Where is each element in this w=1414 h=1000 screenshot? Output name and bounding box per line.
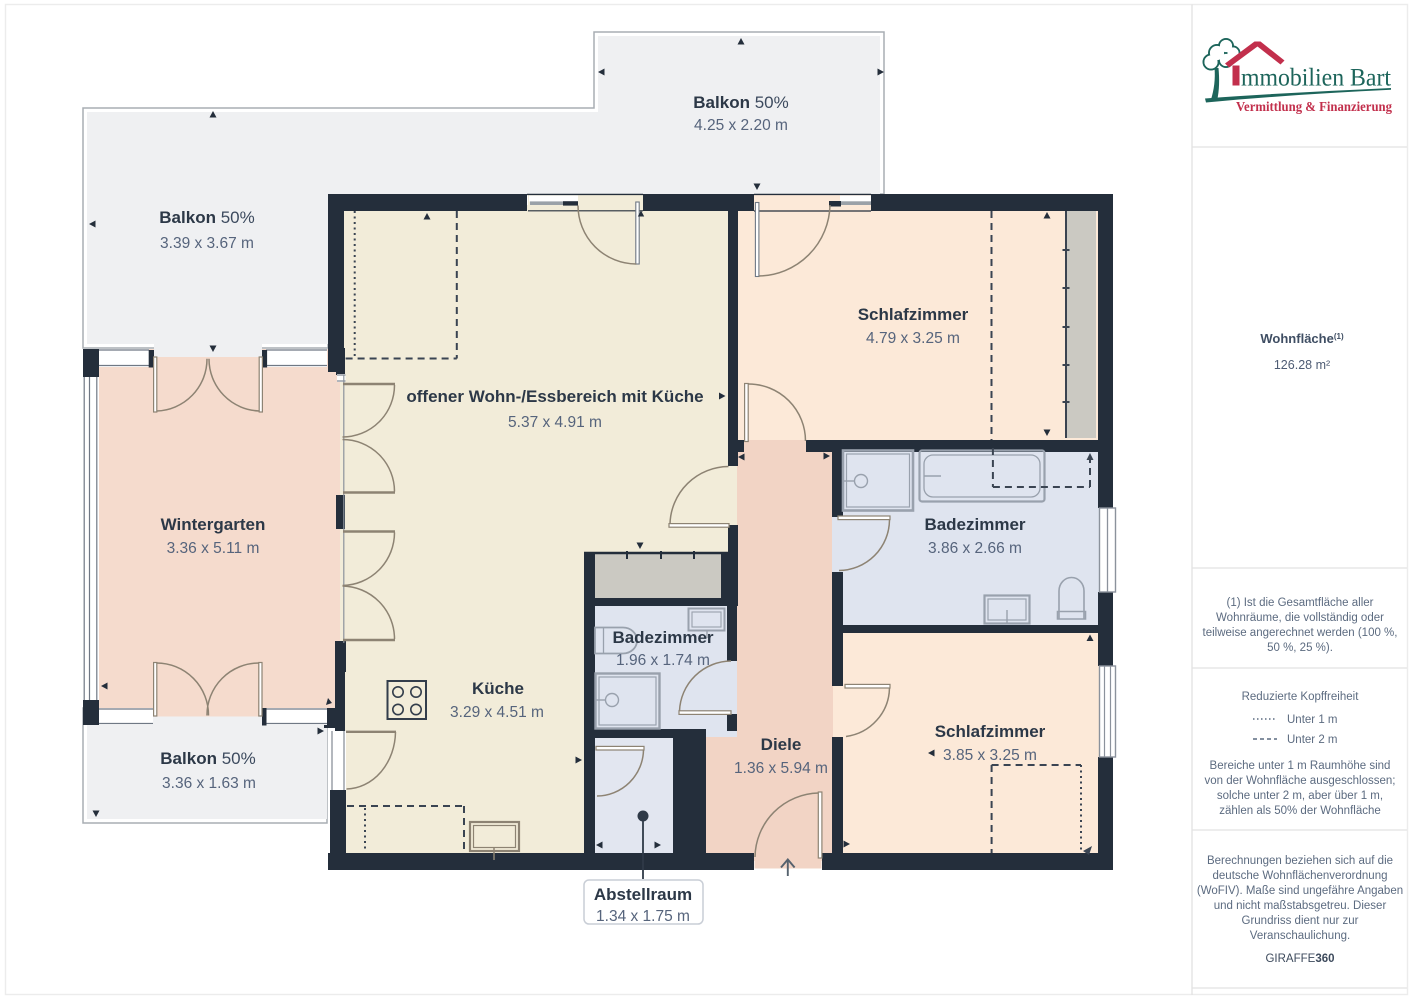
svg-text:zählen als 50% der Wohnfläche: zählen als 50% der Wohnfläche (1219, 805, 1381, 817)
svg-text:4.25 x 2.20 m: 4.25 x 2.20 m (694, 117, 788, 134)
svg-text:GIRAFFE360: GIRAFFE360 (1265, 953, 1334, 965)
svg-text:Veranschaulichung.: Veranschaulichung. (1250, 930, 1350, 942)
svg-text:Wintergarten: Wintergarten (161, 515, 266, 534)
svg-text:3.36 x 1.63 m: 3.36 x 1.63 m (162, 775, 256, 792)
svg-text:3.39 x 3.67 m: 3.39 x 3.67 m (160, 235, 254, 252)
svg-text:3.85 x 3.25 m: 3.85 x 3.25 m (943, 747, 1037, 764)
svg-text:3.29 x 4.51 m: 3.29 x 4.51 m (450, 704, 544, 721)
svg-text:5.37 x 4.91 m: 5.37 x 4.91 m (508, 414, 602, 431)
svg-text:Schlafzimmer: Schlafzimmer (858, 305, 969, 324)
svg-text:Wohnfläche(1): Wohnfläche(1) (1260, 331, 1344, 346)
svg-text:126.28 m²: 126.28 m² (1274, 358, 1330, 372)
svg-text:Vermittlung & Finanzierung: Vermittlung & Finanzierung (1236, 99, 1392, 114)
svg-text:Bereiche unter 1 m Raumhöhe si: Bereiche unter 1 m Raumhöhe sind (1210, 760, 1391, 772)
svg-text:1.34 x 1.75 m: 1.34 x 1.75 m (596, 908, 690, 925)
svg-text:50 %, 25 %).: 50 %, 25 %). (1267, 642, 1333, 654)
svg-text:von der Wohnfläche ausgeschlos: von der Wohnfläche ausgeschlossen; (1205, 775, 1396, 787)
svg-text:Reduzierte Kopffreiheit: Reduzierte Kopffreiheit (1242, 691, 1360, 703)
svg-text:Balkon 50%: Balkon 50% (160, 749, 255, 768)
svg-text:solche unter 2 m, aber über 1: solche unter 2 m, aber über 1 m, (1217, 790, 1383, 802)
svg-text:deutsche Wohnflächenverordnung: deutsche Wohnflächenverordnung (1213, 870, 1388, 882)
svg-text:4.79 x 3.25 m: 4.79 x 3.25 m (866, 330, 960, 347)
svg-text:Küche: Küche (472, 679, 524, 698)
svg-text:Schlafzimmer: Schlafzimmer (935, 722, 1046, 741)
svg-text:3.86 x 2.66 m: 3.86 x 2.66 m (928, 540, 1022, 557)
svg-text:Diele: Diele (761, 735, 802, 754)
svg-text:Abstellraum: Abstellraum (594, 885, 692, 904)
svg-text:Unter 1 m: Unter 1 m (1287, 714, 1338, 726)
svg-text:Unter 2 m: Unter 2 m (1287, 734, 1338, 746)
svg-text:(1) Ist die Gesamtfläche aller: (1) Ist die Gesamtfläche aller (1226, 597, 1373, 609)
svg-text:und nicht maßstabsgetreu. Dies: und nicht maßstabsgetreu. Dieser (1214, 900, 1387, 912)
svg-text:Berechnungen beziehen sich auf: Berechnungen beziehen sich auf die (1207, 855, 1393, 867)
svg-text:Grundriss dient nur zur: Grundriss dient nur zur (1242, 915, 1359, 927)
svg-text:Badezimmer: Badezimmer (924, 515, 1025, 534)
svg-text:1.36 x 5.94 m: 1.36 x 5.94 m (734, 760, 828, 777)
svg-text:Badezimmer: Badezimmer (612, 628, 713, 647)
svg-text:offener Wohn-/Essbereich mit K: offener Wohn-/Essbereich mit Küche (406, 387, 703, 406)
svg-text:Balkon 50%: Balkon 50% (159, 208, 254, 227)
svg-text:mmobilien Bart: mmobilien Bart (1241, 65, 1391, 92)
svg-text:teilweise angerechnet werden (: teilweise angerechnet werden (100 %, (1203, 627, 1398, 639)
svg-text:1.96 x 1.74 m: 1.96 x 1.74 m (616, 652, 710, 669)
svg-text:Balkon 50%: Balkon 50% (693, 93, 788, 112)
svg-text:Wohnräume, die vollständig ode: Wohnräume, die vollständig oder (1216, 612, 1384, 624)
svg-text:(WoFIV). Maße sind ungefähre A: (WoFIV). Maße sind ungefähre Angaben (1197, 885, 1403, 897)
svg-text:3.36 x 5.11 m: 3.36 x 5.11 m (167, 540, 260, 557)
